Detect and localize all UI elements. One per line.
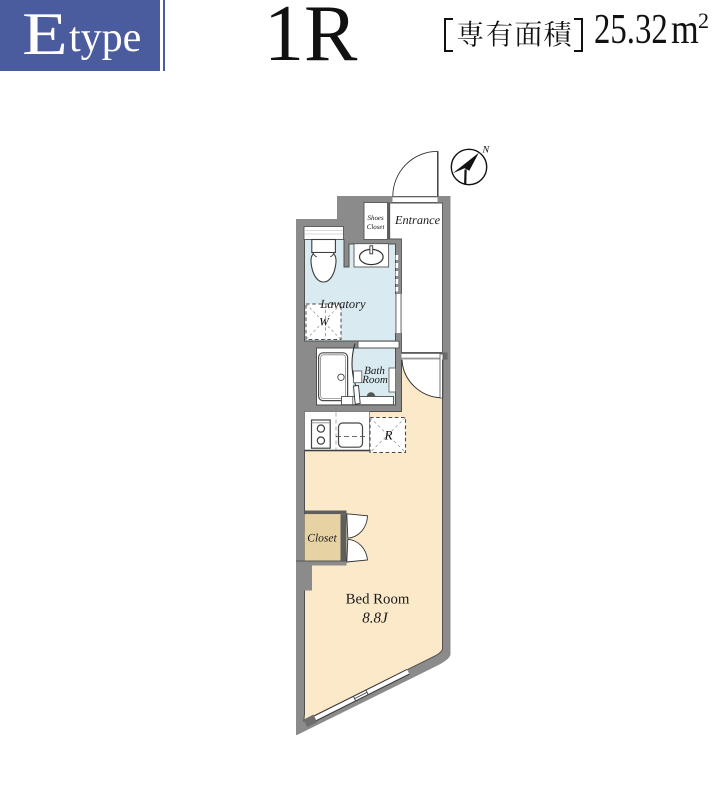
svg-text:Entrance: Entrance	[394, 213, 441, 227]
svg-text:Shoes: Shoes	[368, 215, 384, 222]
svg-text:8.8J: 8.8J	[362, 610, 389, 626]
svg-text:Lavatory: Lavatory	[319, 297, 366, 311]
svg-text:Room: Room	[361, 374, 388, 386]
svg-text:N: N	[482, 145, 491, 156]
svg-text:R: R	[384, 428, 393, 443]
svg-text:Closet: Closet	[307, 533, 337, 545]
svg-text:Bed Room: Bed Room	[346, 591, 410, 607]
svg-text:W: W	[319, 317, 330, 329]
svg-text:Closet: Closet	[367, 224, 386, 231]
